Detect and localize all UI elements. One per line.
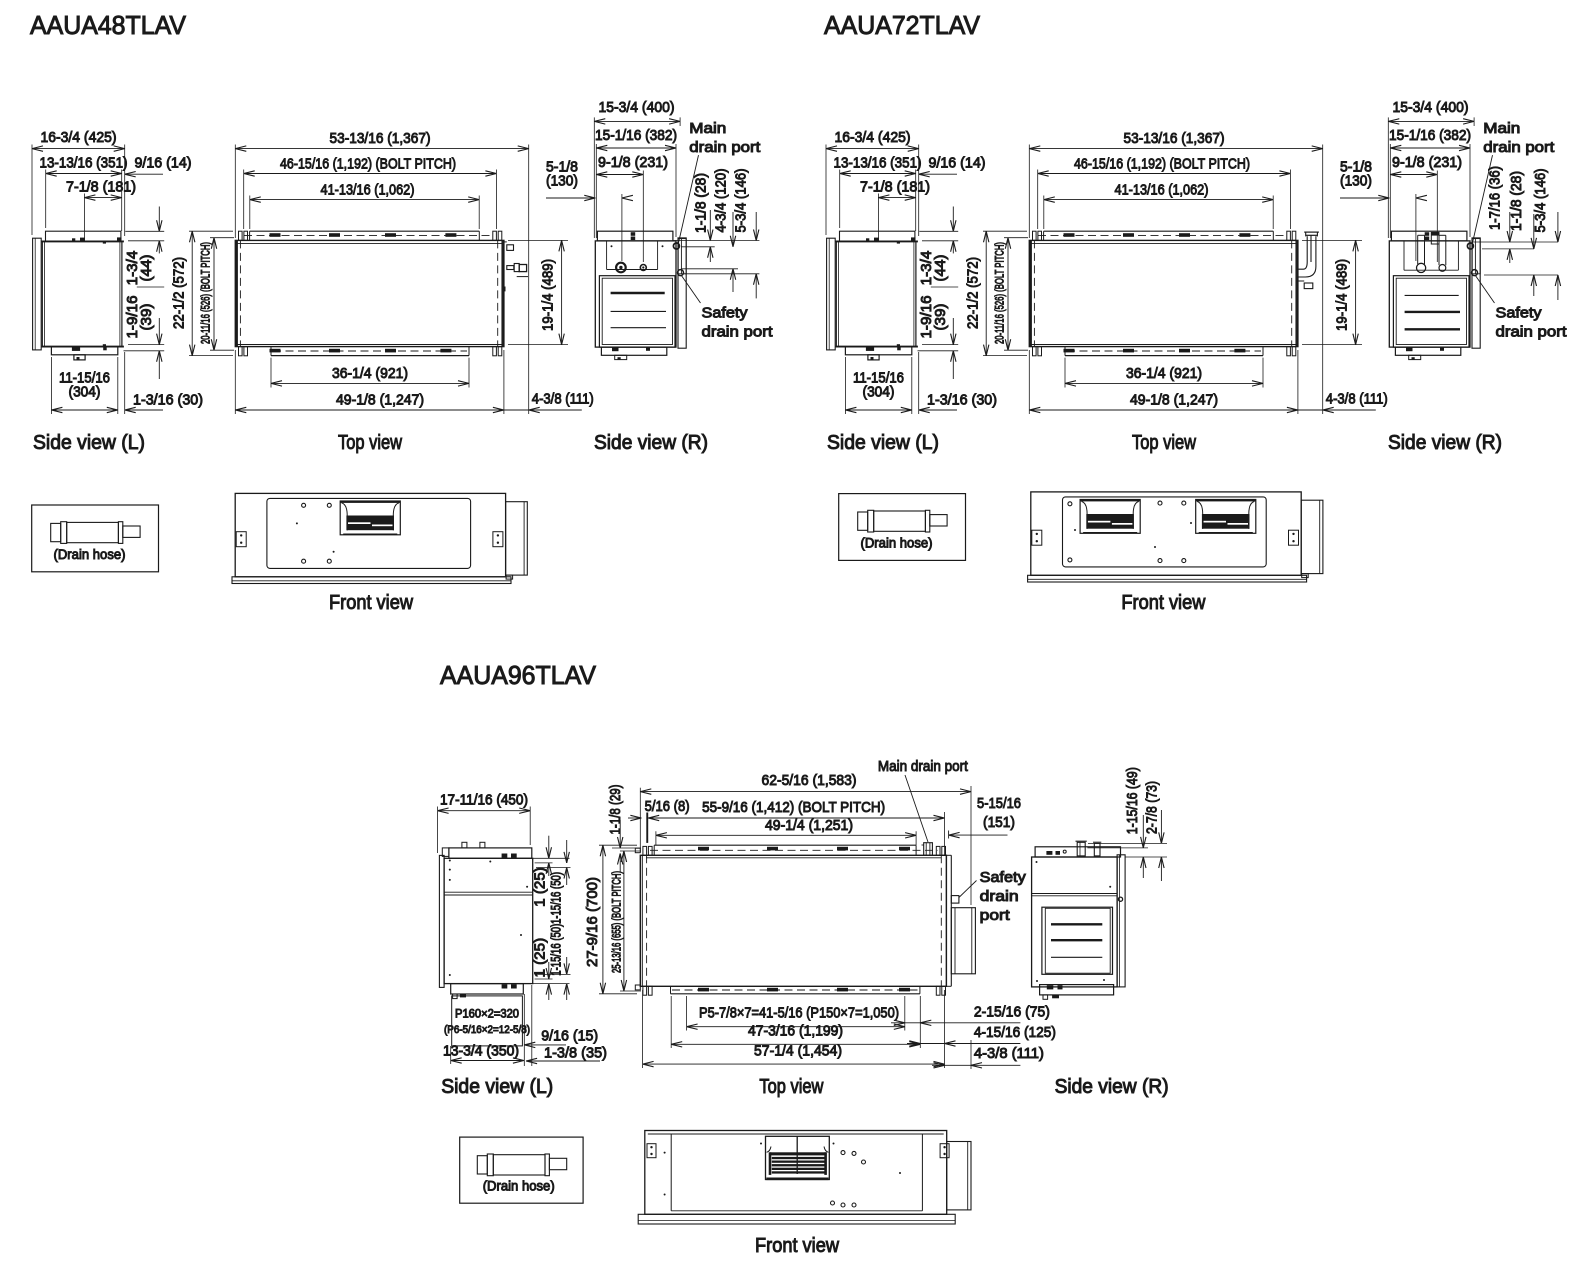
svg-text:1 (25): 1 (25) bbox=[531, 938, 548, 978]
svg-text:53-13/16 (1,367): 53-13/16 (1,367) bbox=[330, 130, 431, 147]
svg-text:5-15/16: 5-15/16 bbox=[977, 795, 1021, 812]
svg-text:1-3/8 (35): 1-3/8 (35) bbox=[544, 1045, 607, 1062]
svg-text:46-15/16 (1,192) (BOLT PITCH): 46-15/16 (1,192) (BOLT PITCH) bbox=[1074, 155, 1250, 172]
svg-text:20-11/16 (526) (BOLT PITCH): 20-11/16 (526) (BOLT PITCH) bbox=[993, 242, 1007, 344]
svg-text:Side view (R): Side view (R) bbox=[1388, 431, 1502, 454]
svg-text:36-1/4 (921): 36-1/4 (921) bbox=[332, 365, 408, 382]
svg-text:1-15/16 (50): 1-15/16 (50) bbox=[548, 924, 563, 976]
svg-text:13-13/16 (351): 13-13/16 (351) bbox=[40, 155, 128, 172]
svg-text:Safety: Safety bbox=[702, 305, 748, 322]
svg-text:Safety: Safety bbox=[980, 869, 1026, 886]
svg-text:drain port: drain port bbox=[1496, 324, 1568, 341]
svg-text:15-1/16 (382): 15-1/16 (382) bbox=[1389, 127, 1471, 144]
svg-text:Safety: Safety bbox=[1496, 305, 1542, 322]
svg-text:(Drain hose): (Drain hose) bbox=[54, 547, 126, 562]
svg-text:9-1/8 (231): 9-1/8 (231) bbox=[1392, 154, 1462, 171]
svg-text:17-11/16 (450): 17-11/16 (450) bbox=[440, 792, 528, 809]
svg-text:5/16 (8): 5/16 (8) bbox=[645, 798, 690, 815]
svg-text:9/16 (15): 9/16 (15) bbox=[541, 1028, 598, 1045]
svg-text:P160×2=320: P160×2=320 bbox=[455, 1007, 519, 1021]
svg-text:(Drain hose): (Drain hose) bbox=[483, 1178, 555, 1193]
svg-text:20-11/16 (526) (BOLT PITCH): 20-11/16 (526) (BOLT PITCH) bbox=[199, 242, 213, 344]
svg-text:2-15/16 (75): 2-15/16 (75) bbox=[974, 1004, 1050, 1021]
svg-text:P5-7/8×7=41-5/16 (P150×7=1,050: P5-7/8×7=41-5/16 (P150×7=1,050) bbox=[699, 1005, 899, 1022]
svg-text:1-1/8 (28): 1-1/8 (28) bbox=[1508, 171, 1525, 231]
svg-text:7-1/8 (181): 7-1/8 (181) bbox=[66, 179, 136, 196]
svg-text:22-1/2 (572): 22-1/2 (572) bbox=[171, 257, 188, 329]
svg-text:13-3/4 (350): 13-3/4 (350) bbox=[443, 1044, 519, 1060]
svg-text:27-9/16 (700): 27-9/16 (700) bbox=[584, 877, 601, 967]
svg-text:Front view: Front view bbox=[1121, 591, 1205, 614]
svg-text:41-13/16 (1,062): 41-13/16 (1,062) bbox=[321, 181, 415, 198]
svg-text:9/16 (14): 9/16 (14) bbox=[135, 155, 192, 172]
svg-text:15-3/4 (400): 15-3/4 (400) bbox=[1393, 99, 1469, 116]
svg-text:port: port bbox=[980, 907, 1011, 924]
svg-text:5-3/4 (146): 5-3/4 (146) bbox=[732, 169, 749, 233]
svg-text:4-3/4 (120): 4-3/4 (120) bbox=[713, 169, 730, 233]
svg-text:1-15/16 (50): 1-15/16 (50) bbox=[548, 872, 563, 924]
svg-text:22-1/2 (572): 22-1/2 (572) bbox=[965, 257, 982, 329]
svg-text:19-1/4 (489): 19-1/4 (489) bbox=[1334, 259, 1351, 331]
svg-text:(151): (151) bbox=[983, 814, 1015, 831]
svg-text:49-1/8 (1,247): 49-1/8 (1,247) bbox=[1130, 391, 1218, 408]
svg-text:drain: drain bbox=[980, 888, 1019, 905]
svg-text:Main: Main bbox=[689, 120, 726, 137]
svg-text:62-5/16 (1,583): 62-5/16 (1,583) bbox=[762, 772, 857, 789]
svg-text:5-3/4 (146): 5-3/4 (146) bbox=[1532, 169, 1549, 233]
svg-text:13-13/16 (351): 13-13/16 (351) bbox=[834, 155, 922, 172]
svg-text:(39): (39) bbox=[138, 303, 155, 330]
svg-text:AAUA72TLAV: AAUA72TLAV bbox=[824, 10, 981, 40]
svg-text:Side view (L): Side view (L) bbox=[33, 431, 145, 454]
svg-text:4-3/8 (111): 4-3/8 (111) bbox=[1326, 391, 1388, 408]
svg-text:1-7/16 (36): 1-7/16 (36) bbox=[1487, 166, 1504, 230]
svg-text:Side view (L): Side view (L) bbox=[441, 1075, 553, 1098]
svg-text:7-1/8 (181): 7-1/8 (181) bbox=[860, 179, 930, 196]
svg-text:9/16 (14): 9/16 (14) bbox=[929, 155, 986, 172]
svg-text:25-13/16 (655) (BOLT PITCH): 25-13/16 (655) (BOLT PITCH) bbox=[610, 871, 624, 973]
svg-text:AAUA48TLAV: AAUA48TLAV bbox=[30, 10, 187, 40]
svg-text:(304): (304) bbox=[863, 384, 895, 401]
svg-text:(P6-5/16×2=12-5/8): (P6-5/16×2=12-5/8) bbox=[444, 1024, 530, 1036]
svg-text:41-13/16 (1,062): 41-13/16 (1,062) bbox=[1115, 181, 1209, 198]
svg-text:15-3/4 (400): 15-3/4 (400) bbox=[599, 99, 675, 116]
svg-text:Top view: Top view bbox=[338, 431, 402, 454]
svg-text:15-1/16 (382): 15-1/16 (382) bbox=[595, 127, 677, 144]
svg-text:4-15/16 (125): 4-15/16 (125) bbox=[974, 1024, 1056, 1041]
svg-text:36-1/4 (921): 36-1/4 (921) bbox=[1126, 365, 1202, 382]
svg-text:drain port: drain port bbox=[702, 324, 774, 341]
svg-text:16-3/4 (425): 16-3/4 (425) bbox=[41, 129, 117, 146]
svg-text:19-1/4 (489): 19-1/4 (489) bbox=[540, 259, 557, 331]
svg-text:(44): (44) bbox=[138, 254, 155, 281]
svg-text:drain port: drain port bbox=[689, 139, 761, 156]
svg-text:Top view: Top view bbox=[1132, 431, 1196, 454]
svg-text:47-3/16 (1,199): 47-3/16 (1,199) bbox=[748, 1023, 843, 1040]
svg-text:1-1/8 (28): 1-1/8 (28) bbox=[693, 173, 710, 233]
svg-text:(130): (130) bbox=[1340, 173, 1372, 190]
svg-text:(130): (130) bbox=[546, 173, 578, 190]
svg-text:Side view (L): Side view (L) bbox=[827, 431, 939, 454]
svg-text:Main drain port: Main drain port bbox=[878, 758, 969, 775]
svg-text:Side view (R): Side view (R) bbox=[1055, 1075, 1169, 1098]
svg-text:(304): (304) bbox=[69, 384, 101, 401]
svg-text:drain port: drain port bbox=[1483, 139, 1555, 156]
svg-text:16-3/4 (425): 16-3/4 (425) bbox=[835, 129, 911, 146]
svg-text:4-3/8 (111): 4-3/8 (111) bbox=[532, 391, 594, 408]
svg-text:57-1/4 (1,454): 57-1/4 (1,454) bbox=[754, 1043, 842, 1060]
svg-text:1-15/16 (49): 1-15/16 (49) bbox=[1124, 767, 1141, 834]
svg-text:4-3/8 (111): 4-3/8 (111) bbox=[974, 1045, 1044, 1062]
svg-text:55-9/16 (1,412) (BOLT PITCH): 55-9/16 (1,412) (BOLT PITCH) bbox=[702, 799, 885, 816]
svg-text:Side view (R): Side view (R) bbox=[594, 431, 708, 454]
svg-text:(Drain hose): (Drain hose) bbox=[861, 536, 933, 551]
svg-text:9-1/8 (231): 9-1/8 (231) bbox=[598, 154, 668, 171]
svg-text:53-13/16 (1,367): 53-13/16 (1,367) bbox=[1124, 130, 1225, 147]
svg-text:Front view: Front view bbox=[329, 591, 413, 614]
svg-text:Front view: Front view bbox=[755, 1234, 839, 1257]
svg-text:AAUA96TLAV: AAUA96TLAV bbox=[440, 660, 597, 690]
svg-text:1-1/8 (29): 1-1/8 (29) bbox=[607, 785, 624, 835]
svg-text:1-3/16 (30): 1-3/16 (30) bbox=[927, 392, 997, 409]
svg-text:49-1/8 (1,247): 49-1/8 (1,247) bbox=[336, 391, 424, 408]
svg-text:Top view: Top view bbox=[759, 1075, 823, 1098]
svg-text:(39): (39) bbox=[932, 303, 949, 330]
svg-text:49-1/4 (1,251): 49-1/4 (1,251) bbox=[765, 817, 853, 834]
svg-text:1-3/16 (30): 1-3/16 (30) bbox=[133, 392, 203, 409]
svg-text:(44): (44) bbox=[932, 254, 949, 281]
svg-text:2-7/8 (73): 2-7/8 (73) bbox=[1143, 781, 1160, 834]
svg-text:46-15/16 (1,192) (BOLT PITCH): 46-15/16 (1,192) (BOLT PITCH) bbox=[280, 155, 456, 172]
svg-text:Main: Main bbox=[1483, 120, 1520, 137]
